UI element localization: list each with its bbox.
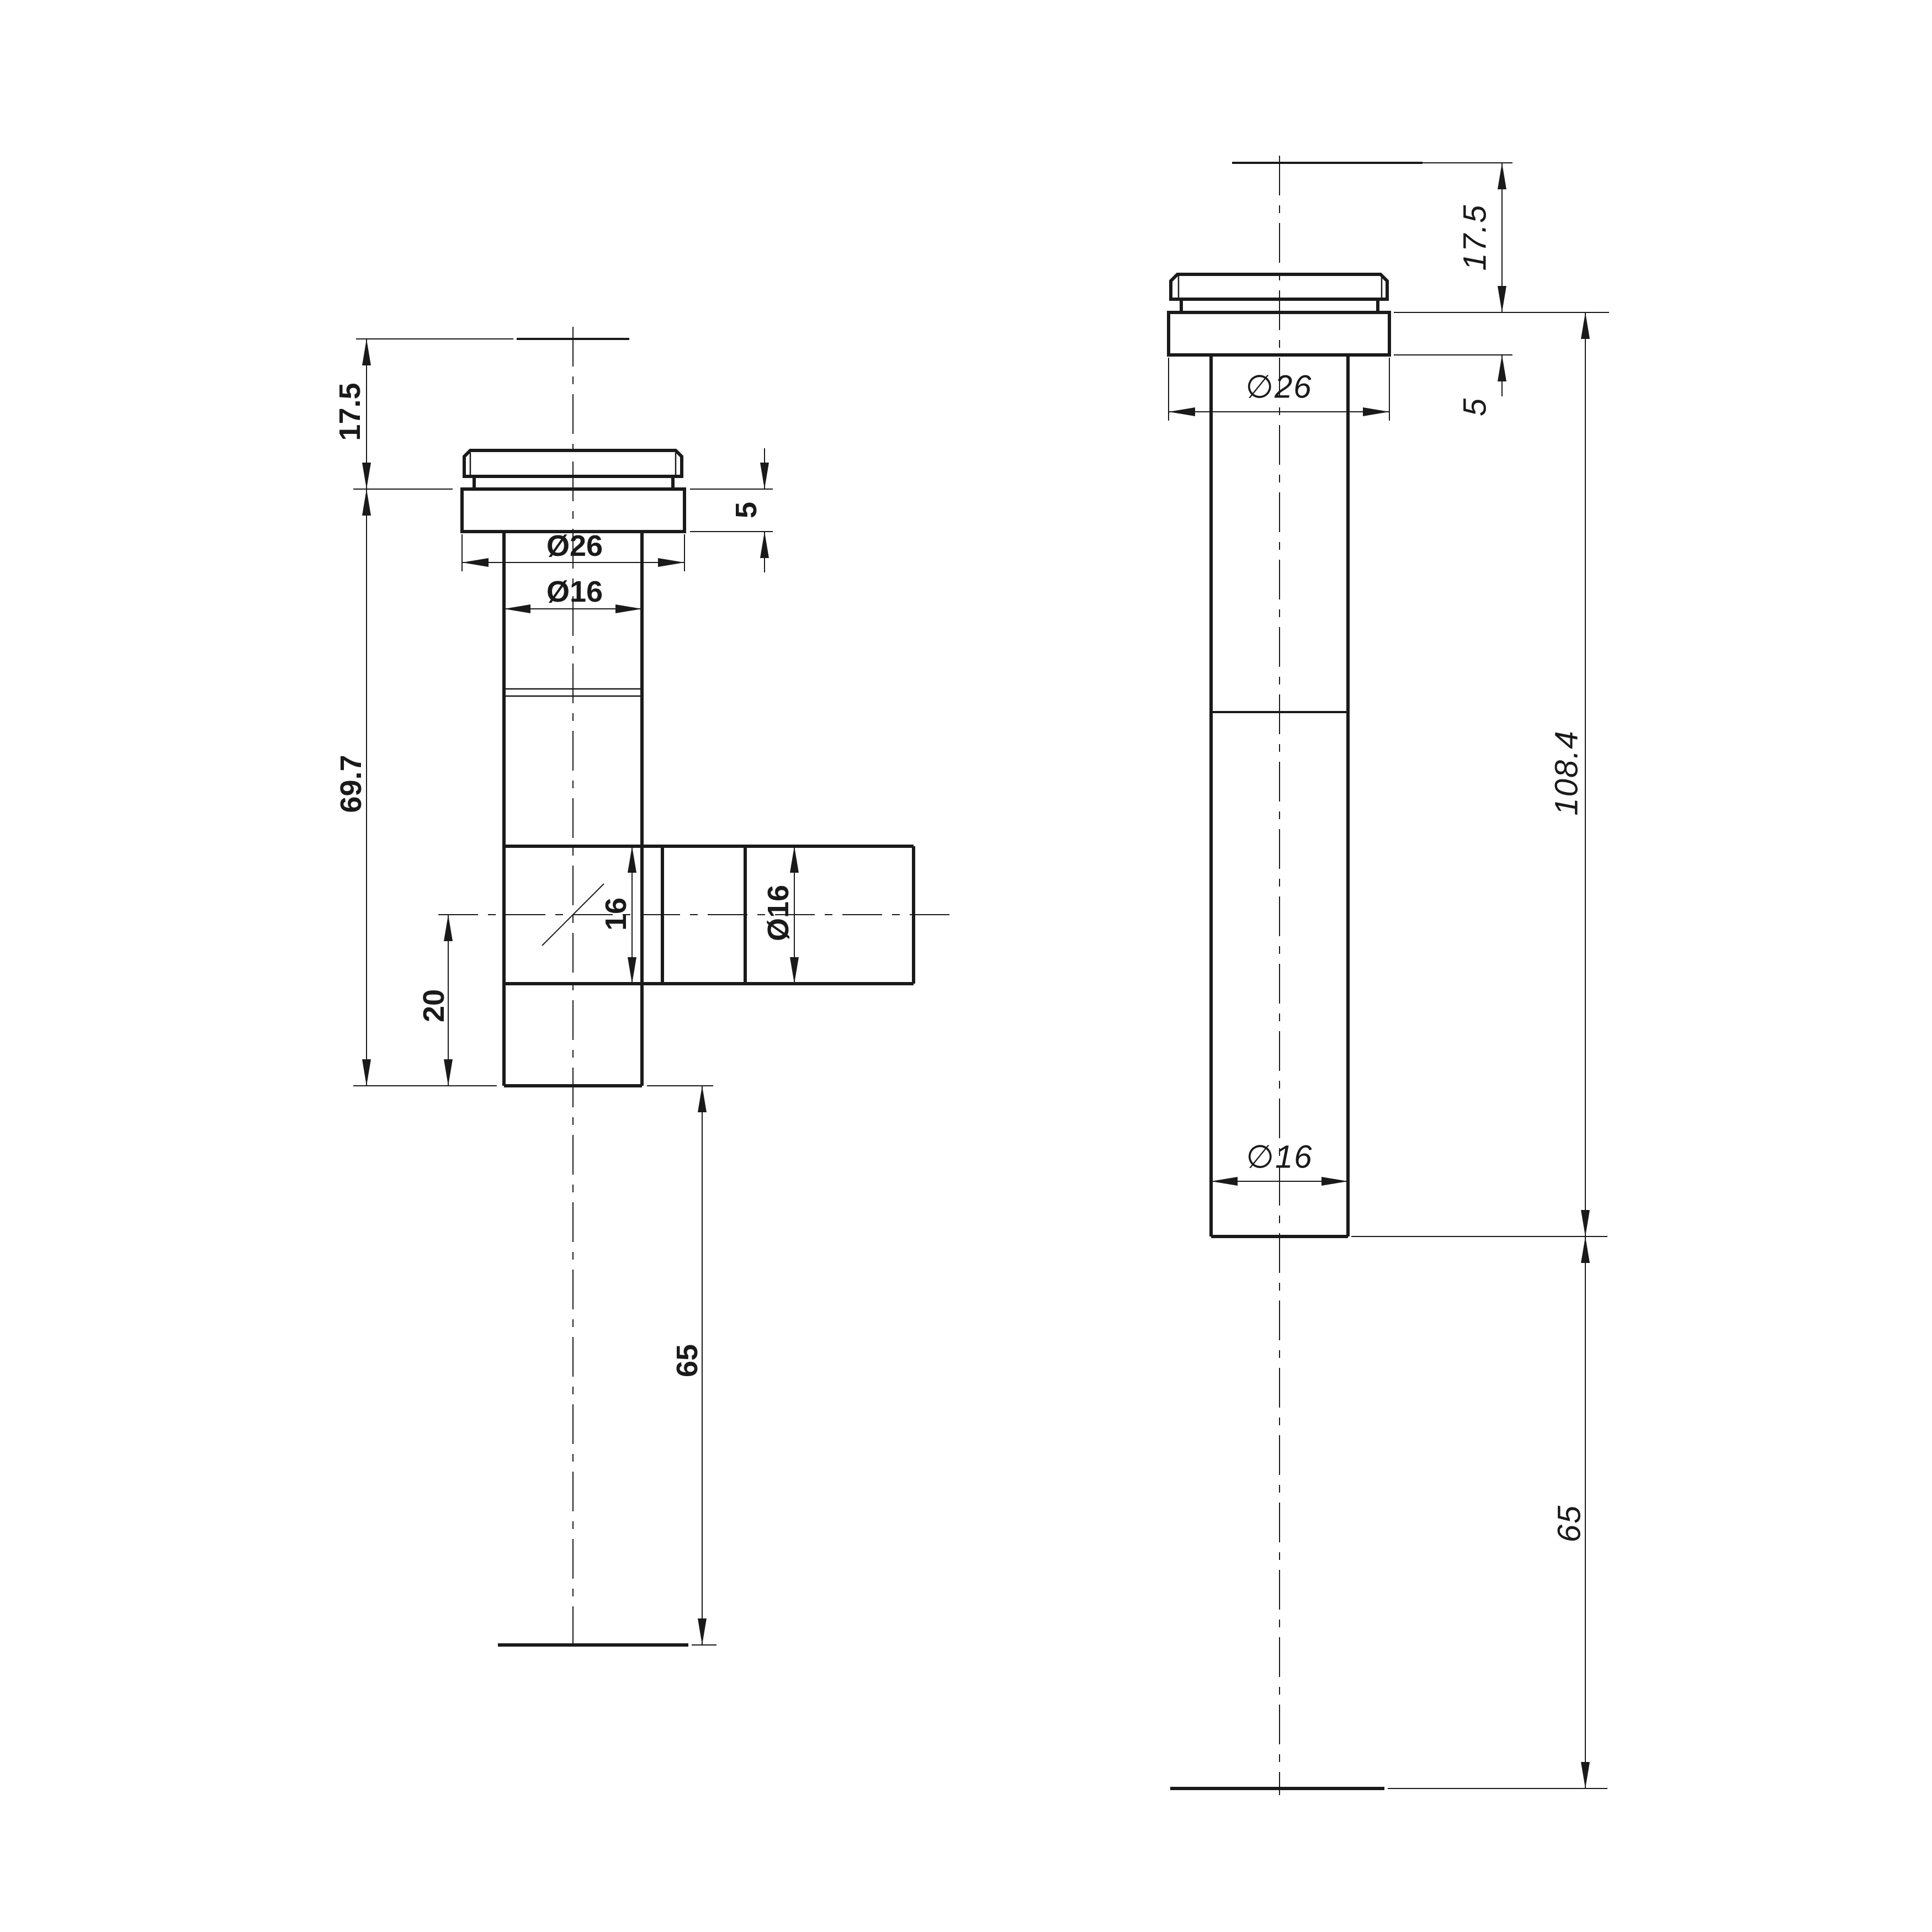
side-dim-shaft-dia: ∅16: [1246, 1139, 1313, 1175]
front-centerlines: [438, 327, 957, 1649]
front-dim-branch-center-offset: 20: [417, 989, 450, 1022]
front-dim-shaft-dia: Ø16: [546, 575, 603, 608]
side-view: 17.5 5 ∅26 108.4 ∅16 65: [1169, 156, 1609, 1795]
front-dim-branch-dia: Ø16: [762, 885, 795, 941]
side-dim-top-offset: 17.5: [1457, 204, 1493, 271]
front-dim-top-offset: 17.5: [333, 383, 367, 440]
front-dim-body-height: 69.7: [335, 755, 368, 813]
side-dim-bottom-offset: 65: [1552, 1505, 1588, 1543]
front-dim-bottom-offset: 65: [671, 1344, 704, 1377]
side-dimension-labels: 17.5 5 ∅26 108.4 ∅16 65: [1245, 204, 1587, 1543]
side-extension-lines: [1169, 163, 1609, 1788]
front-dim-flange-dia: Ø26: [546, 529, 603, 562]
front-dim-branch-bore: 16: [599, 898, 633, 931]
side-dimension-lines: [1169, 163, 1590, 1788]
side-dim-flange-dia: ∅26: [1245, 369, 1312, 405]
front-view: 17.5 69.7 5 Ø26 Ø16 16 Ø16 20 65: [333, 327, 957, 1649]
front-part-outline: [462, 450, 914, 1645]
side-dim-flange-thickness: 5: [1457, 397, 1493, 416]
front-dim-flange-thickness: 5: [730, 502, 763, 518]
side-dim-body-height: 108.4: [1549, 730, 1585, 815]
drawing-canvas: 17.5 69.7 5 Ø26 Ø16 16 Ø16 20 65: [0, 0, 1932, 1932]
drawing-page: 17.5 69.7 5 Ø26 Ø16 16 Ø16 20 65: [0, 0, 1932, 1932]
